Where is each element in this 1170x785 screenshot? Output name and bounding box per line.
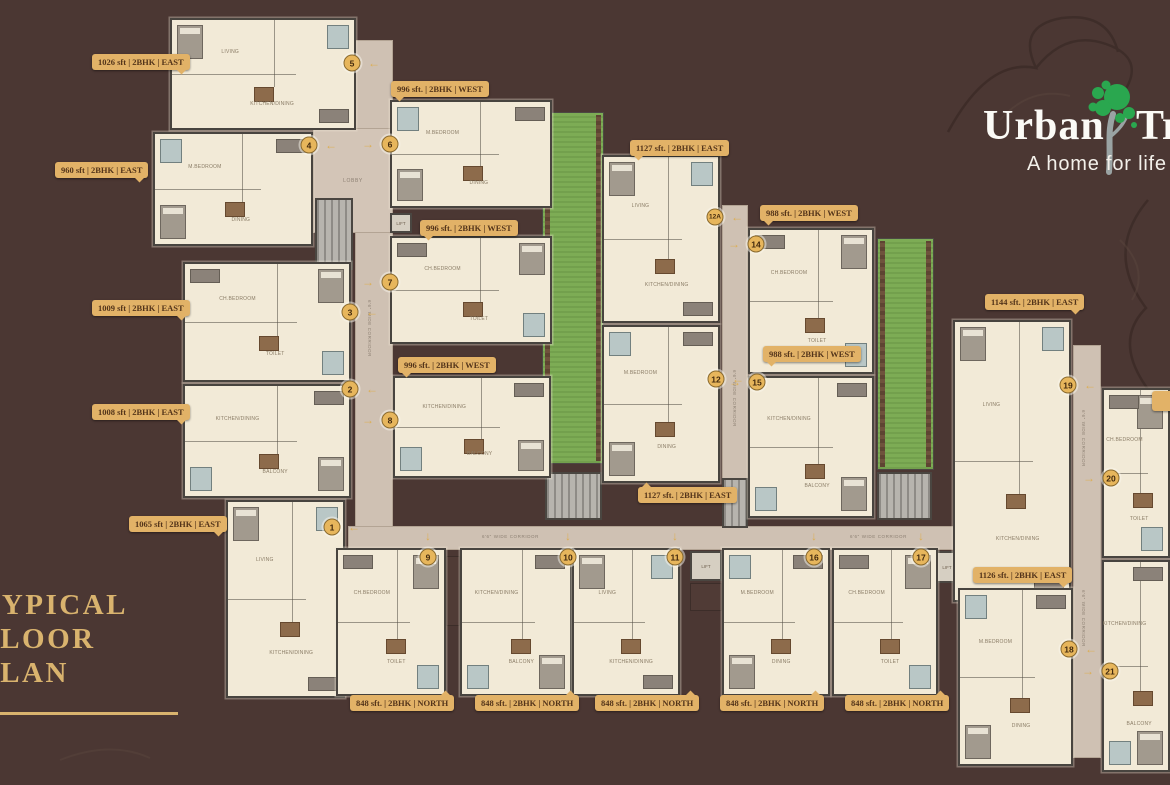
floor-plan-poster: LOBBYLIFTLIFTLIFT6'6" WIDE CORRIDOR6'6" … bbox=[0, 0, 1170, 785]
dining-table bbox=[254, 87, 274, 102]
unit-block: M.BEDROOMDINING bbox=[153, 132, 313, 246]
interior-wall bbox=[724, 622, 795, 623]
room-label: BALCONY bbox=[467, 451, 492, 457]
unit-number-marker: 9 bbox=[420, 549, 437, 566]
dining-table bbox=[621, 639, 641, 654]
interior-wall bbox=[242, 134, 243, 202]
dining-table bbox=[386, 639, 406, 654]
room-label: M.BEDROOM bbox=[741, 590, 774, 596]
direction-arrow: ← bbox=[1084, 378, 1096, 392]
label-tail bbox=[764, 216, 774, 226]
sofa bbox=[343, 555, 373, 569]
direction-arrow: ↓ bbox=[565, 529, 571, 543]
garden-area bbox=[877, 238, 934, 470]
label-tail bbox=[213, 527, 223, 537]
direction-arrow: ← bbox=[1085, 642, 1097, 656]
room-label: CH.BEDROOM bbox=[848, 590, 884, 596]
staircase bbox=[315, 198, 353, 270]
lift-shaft: LIFT bbox=[390, 213, 412, 233]
bathroom-area bbox=[729, 555, 751, 579]
unit-number-marker: 6 bbox=[382, 136, 399, 153]
room-label: CH.BEDROOM bbox=[771, 270, 807, 276]
room-label: DINING bbox=[772, 659, 791, 665]
room-label: KITCHEN/DINING bbox=[996, 536, 1040, 542]
room-label: BALCONY bbox=[1127, 721, 1152, 727]
unit-size-label: 1026 sft | 2BHK | EAST bbox=[92, 54, 190, 70]
room-label: LIVING bbox=[598, 590, 616, 596]
direction-arrow: ← bbox=[325, 138, 337, 152]
interior-wall bbox=[462, 622, 535, 623]
label-tail bbox=[1071, 305, 1081, 315]
unit-block: LIVINGKITCHEN/DINING bbox=[572, 548, 680, 696]
interior-wall bbox=[277, 264, 278, 336]
interior-wall bbox=[668, 327, 669, 422]
sofa bbox=[397, 243, 427, 257]
sofa bbox=[683, 332, 713, 346]
room-label: M.BEDROOM bbox=[979, 639, 1012, 645]
unit-block: M.BEDROOMDINING bbox=[602, 325, 720, 483]
room-label: KITCHEN/DINING bbox=[645, 282, 689, 288]
direction-arrow: → bbox=[728, 237, 740, 251]
sofa bbox=[308, 677, 338, 691]
unit-number-marker: 17 bbox=[913, 549, 930, 566]
sofa bbox=[683, 302, 713, 316]
unit-size-label: 1008 sft | 2BHK | EAST bbox=[92, 404, 190, 420]
room-label: TOILET bbox=[266, 351, 285, 357]
unit-size-label: 988 sft. | 2BHK | WEST bbox=[760, 205, 858, 221]
room-label: TOILET bbox=[387, 659, 406, 665]
direction-arrow: ← bbox=[348, 520, 360, 534]
interior-wall bbox=[522, 550, 523, 639]
bed bbox=[609, 442, 635, 476]
staircase bbox=[545, 472, 602, 520]
interior-wall bbox=[604, 239, 682, 240]
room-label: KITCHEN/DINING bbox=[422, 404, 466, 410]
unit-size-label: 848 sft. | 2BHK | NORTH bbox=[845, 695, 949, 711]
dining-table bbox=[655, 259, 675, 274]
dining-table bbox=[511, 639, 531, 654]
unit-number-marker: 5 bbox=[344, 55, 361, 72]
interior-wall bbox=[1022, 590, 1023, 698]
room-label: BALCONY bbox=[263, 469, 288, 475]
interior-wall bbox=[338, 622, 410, 623]
unit-block: CH.BEDROOMTOILET bbox=[390, 236, 552, 344]
interior-wall bbox=[480, 238, 481, 302]
label-tail bbox=[441, 691, 451, 701]
room-label: CH.BEDROOM bbox=[219, 296, 255, 302]
unit-size-label: 848 sft. | 2BHK | NORTH bbox=[475, 695, 579, 711]
room-label: KITCHEN/DINING bbox=[767, 416, 811, 422]
unit-number-marker: 3 bbox=[342, 304, 359, 321]
direction-arrow: ↓ bbox=[811, 529, 817, 543]
bathroom-area bbox=[322, 351, 344, 375]
bed bbox=[729, 655, 755, 689]
interior-wall bbox=[395, 427, 500, 428]
direction-arrow: → bbox=[362, 137, 374, 151]
unit-size-label: 960 sft | 2BHK | EAST bbox=[55, 162, 148, 178]
unit-number-marker: 20 bbox=[1103, 470, 1120, 487]
sofa bbox=[1109, 395, 1139, 409]
service-shaft bbox=[690, 583, 722, 611]
unit-number-marker: 18 bbox=[1061, 641, 1078, 658]
bed bbox=[397, 169, 423, 201]
unit-number-marker: 4 bbox=[301, 137, 318, 154]
unit-number-marker: 2 bbox=[342, 381, 359, 398]
corridor-width-label: 6'6" WIDE CORRIDOR bbox=[1081, 590, 1086, 647]
bed bbox=[579, 555, 605, 589]
unit-block: M.BEDROOMDINING bbox=[722, 548, 830, 696]
bathroom-area bbox=[467, 665, 489, 689]
room-label: KITCHEN/DINING bbox=[1103, 621, 1147, 627]
corridor-width-label: 6'6" WIDE CORRIDOR bbox=[482, 534, 539, 539]
bed bbox=[318, 457, 344, 491]
bathroom-area bbox=[609, 332, 631, 356]
interior-wall bbox=[834, 622, 903, 623]
direction-arrow: → bbox=[362, 413, 374, 427]
unit-number-marker: 11 bbox=[667, 549, 684, 566]
unit-size-label bbox=[1152, 391, 1170, 411]
unit-block: KITCHEN/DININGBALCONY bbox=[393, 376, 551, 478]
sofa bbox=[643, 675, 673, 689]
interior-wall bbox=[955, 461, 1033, 462]
interior-wall bbox=[818, 230, 819, 318]
lift-shaft: LIFT bbox=[690, 551, 722, 581]
room-label: LIVING bbox=[632, 203, 650, 209]
unit-size-label: 848 sft. | 2BHK | NORTH bbox=[720, 695, 824, 711]
interior-wall bbox=[574, 622, 645, 623]
room-label: KITCHEN/DINING bbox=[269, 650, 313, 656]
sofa bbox=[1133, 567, 1163, 581]
page-title-line1: TYPICAL bbox=[0, 588, 128, 622]
sofa bbox=[319, 109, 349, 123]
dining-table bbox=[1006, 494, 1026, 509]
unit-number-marker: 15 bbox=[749, 374, 766, 391]
unit-block: M.BEDROOMDINING bbox=[390, 100, 552, 208]
unit-size-label: 1009 sft | 2BHK | EAST bbox=[92, 300, 190, 316]
sofa bbox=[190, 269, 220, 283]
interior-wall bbox=[782, 550, 783, 639]
unit-size-label: 1126 sft. | 2BHK | EAST bbox=[973, 567, 1072, 583]
corridor bbox=[355, 40, 393, 550]
interior-wall bbox=[604, 404, 682, 405]
bathroom-area bbox=[190, 467, 212, 491]
unit-size-label: 996 sft. | 2BHK | WEST bbox=[420, 220, 518, 236]
room-label: BALCONY bbox=[509, 659, 534, 665]
room-label: CH.BEDROOM bbox=[354, 590, 390, 596]
interior-wall bbox=[274, 20, 275, 87]
unit-number-marker: 12 bbox=[708, 371, 725, 388]
corridor-width-label: 6'6" WIDE CORRIDOR bbox=[850, 534, 907, 539]
sofa bbox=[515, 107, 545, 121]
room-label: KITCHEN/DINING bbox=[609, 659, 653, 665]
dining-table bbox=[259, 336, 279, 351]
unit-size-label: 1144 sft. | 2BHK | EAST bbox=[985, 294, 1084, 310]
interior-wall bbox=[155, 189, 261, 190]
interior-wall bbox=[668, 157, 669, 259]
bathroom-area bbox=[327, 25, 349, 49]
room-label: DINING bbox=[470, 180, 489, 186]
unit-block: CH.BEDROOMTOILET bbox=[832, 548, 938, 696]
lift-label: LIFT bbox=[942, 565, 951, 570]
direction-arrow: ← bbox=[366, 305, 378, 319]
bathroom-area bbox=[909, 665, 931, 689]
dining-table bbox=[880, 639, 900, 654]
dining-table bbox=[1133, 493, 1153, 508]
unit-block: M.BEDROOMDINING bbox=[958, 588, 1073, 766]
lift-label: LIFT bbox=[701, 564, 710, 569]
room-label: LIVING bbox=[221, 49, 239, 55]
unit-size-label: 848 sft. | 2BHK | NORTH bbox=[595, 695, 699, 711]
direction-arrow: ↓ bbox=[672, 529, 678, 543]
bed bbox=[609, 162, 635, 196]
corridor bbox=[1073, 345, 1101, 758]
bed bbox=[233, 507, 259, 541]
room-label: LIVING bbox=[983, 402, 1001, 408]
unit-size-label: 1065 sft | 2BHK | EAST bbox=[129, 516, 227, 532]
room-label: KITCHEN/DINING bbox=[475, 590, 519, 596]
dining-table bbox=[655, 422, 675, 437]
bathroom-area bbox=[523, 313, 545, 337]
label-tail bbox=[686, 691, 696, 701]
unit-number-marker: 16 bbox=[806, 549, 823, 566]
room-label: DINING bbox=[657, 444, 676, 450]
staircase bbox=[877, 472, 932, 520]
unit-number-marker: 10 bbox=[560, 549, 577, 566]
bathroom-area bbox=[160, 139, 182, 163]
bed bbox=[160, 205, 186, 239]
interior-wall bbox=[632, 550, 633, 639]
dining-table bbox=[225, 202, 245, 217]
label-tail bbox=[135, 173, 145, 183]
direction-arrow: ← bbox=[731, 210, 743, 224]
bathroom-area bbox=[1109, 741, 1131, 765]
unit-block: LIVINGKITCHEN/DINING bbox=[602, 155, 720, 323]
interior-wall bbox=[172, 74, 296, 75]
unit-block: LIVINGKITCHEN/DINING bbox=[170, 18, 356, 130]
interior-wall bbox=[891, 550, 892, 639]
unit-number-marker: 14 bbox=[748, 236, 765, 253]
direction-arrow: ↓ bbox=[425, 529, 431, 543]
sofa bbox=[514, 383, 544, 397]
unit-number-marker: 8 bbox=[382, 412, 399, 429]
bathroom-area bbox=[755, 487, 777, 511]
page-title-line2: FLOOR bbox=[0, 622, 128, 656]
sofa bbox=[314, 391, 344, 405]
room-label: LIVING bbox=[256, 557, 274, 563]
bed bbox=[841, 235, 867, 269]
corridor-width-label: 6'6" WIDE CORRIDOR bbox=[1081, 410, 1086, 467]
direction-arrow: → bbox=[729, 375, 741, 389]
bed bbox=[519, 243, 545, 275]
page-title: TYPICAL FLOOR PLAN bbox=[0, 588, 128, 690]
sofa bbox=[839, 555, 869, 569]
bed bbox=[965, 725, 991, 759]
bed bbox=[960, 327, 986, 361]
room-label: BALCONY bbox=[804, 483, 829, 489]
bathroom-area bbox=[400, 447, 422, 471]
unit-block: LIVINGKITCHEN/DINING bbox=[953, 320, 1071, 602]
unit-size-label: 1127 sft. | 2BHK | EAST bbox=[638, 487, 737, 503]
bathroom-area bbox=[417, 665, 439, 689]
room-label: TOILET bbox=[470, 316, 489, 322]
dining-table bbox=[280, 622, 300, 637]
bathroom-area bbox=[397, 107, 419, 131]
dining-table bbox=[1133, 691, 1153, 706]
unit-block: KITCHEN/DININGBALCONY bbox=[460, 548, 572, 696]
interior-wall bbox=[481, 378, 482, 439]
interior-wall bbox=[1019, 322, 1020, 494]
bed bbox=[539, 655, 565, 689]
interior-wall bbox=[750, 447, 833, 448]
interior-wall bbox=[292, 502, 293, 622]
room-label: M.BEDROOM bbox=[188, 164, 221, 170]
interior-wall bbox=[960, 677, 1035, 678]
direction-arrow: ← bbox=[366, 382, 378, 396]
interior-wall bbox=[392, 154, 499, 155]
direction-arrow: → bbox=[362, 275, 374, 289]
unit-number-marker: 7 bbox=[382, 274, 399, 291]
dining-table bbox=[805, 464, 825, 479]
dining-table bbox=[1010, 698, 1030, 713]
unit-number-marker: 1 bbox=[324, 519, 341, 536]
room-label: KITCHEN/DINING bbox=[216, 416, 260, 422]
unit-block: CH.BEDROOMTOILET bbox=[183, 262, 351, 382]
room-label: KITCHEN/DINING bbox=[250, 101, 294, 107]
room-label: CH.BEDROOM bbox=[424, 266, 460, 272]
label-tail bbox=[642, 483, 652, 493]
interior-wall bbox=[228, 599, 306, 600]
room-label: DINING bbox=[1012, 723, 1031, 729]
room-label: TOILET bbox=[881, 659, 900, 665]
interior-wall bbox=[185, 441, 297, 442]
interior-wall bbox=[480, 102, 481, 166]
direction-arrow: ↓ bbox=[918, 529, 924, 543]
staircase bbox=[722, 478, 748, 528]
room-label: TOILET bbox=[1130, 516, 1149, 522]
interior-wall bbox=[185, 322, 297, 323]
bathroom-area bbox=[1141, 527, 1163, 551]
interior-wall bbox=[392, 290, 499, 291]
lift-label: LIFT bbox=[396, 221, 405, 226]
unit-size-label: 996 sft. | 2BHK | WEST bbox=[391, 81, 489, 97]
unit-size-label: 1127 sft. | 2BHK | EAST bbox=[630, 140, 729, 156]
bathroom-area bbox=[965, 595, 987, 619]
room-label: DINING bbox=[231, 217, 250, 223]
interior-wall bbox=[750, 301, 833, 302]
direction-arrow: ← bbox=[368, 56, 380, 70]
lobby-label: LOBBY bbox=[343, 178, 363, 184]
room-label: TOILET bbox=[808, 338, 827, 344]
page-title-line3: PLAN bbox=[0, 656, 128, 690]
room-label: M.BEDROOM bbox=[426, 130, 459, 136]
direction-arrow: → bbox=[1082, 664, 1094, 678]
sofa bbox=[837, 383, 867, 397]
unit-block: CH.BEDROOMTOILET bbox=[336, 548, 446, 696]
unit-number-marker: 12A bbox=[707, 209, 724, 226]
sofa bbox=[1036, 595, 1066, 609]
unit-block: KITCHEN/DININGBALCONY bbox=[183, 384, 351, 498]
room-label: M.BEDROOM bbox=[624, 370, 657, 376]
unit-block: KITCHEN/DININGBALCONY bbox=[748, 376, 874, 518]
unit-number-marker: 19 bbox=[1060, 377, 1077, 394]
dining-table bbox=[805, 318, 825, 333]
page-title-underline bbox=[0, 712, 178, 715]
interior-wall bbox=[397, 550, 398, 639]
bed bbox=[518, 440, 544, 471]
unit-number-marker: 21 bbox=[1102, 663, 1119, 680]
bathroom-area bbox=[1042, 327, 1064, 351]
interior-wall bbox=[818, 378, 819, 464]
bed bbox=[318, 269, 344, 303]
bathroom-area bbox=[691, 162, 713, 186]
bed bbox=[1137, 731, 1163, 765]
logo-tagline: A home for life bbox=[1027, 153, 1167, 176]
service-shaft bbox=[446, 556, 460, 626]
dining-table bbox=[259, 454, 279, 469]
logo-brand-tree: Tree bbox=[1136, 102, 1170, 150]
direction-arrow: → bbox=[1083, 471, 1095, 485]
unit-size-label: 996 sft. | 2BHK | WEST bbox=[398, 357, 496, 373]
bed bbox=[841, 477, 867, 511]
room-label: CH.BEDROOM bbox=[1106, 437, 1142, 443]
label-tail bbox=[936, 691, 946, 701]
interior-wall bbox=[277, 386, 278, 454]
dining-table bbox=[771, 639, 791, 654]
unit-size-label: 848 sft. | 2BHK | NORTH bbox=[350, 695, 454, 711]
unit-size-label: 988 sft. | 2BHK | WEST bbox=[763, 346, 861, 362]
